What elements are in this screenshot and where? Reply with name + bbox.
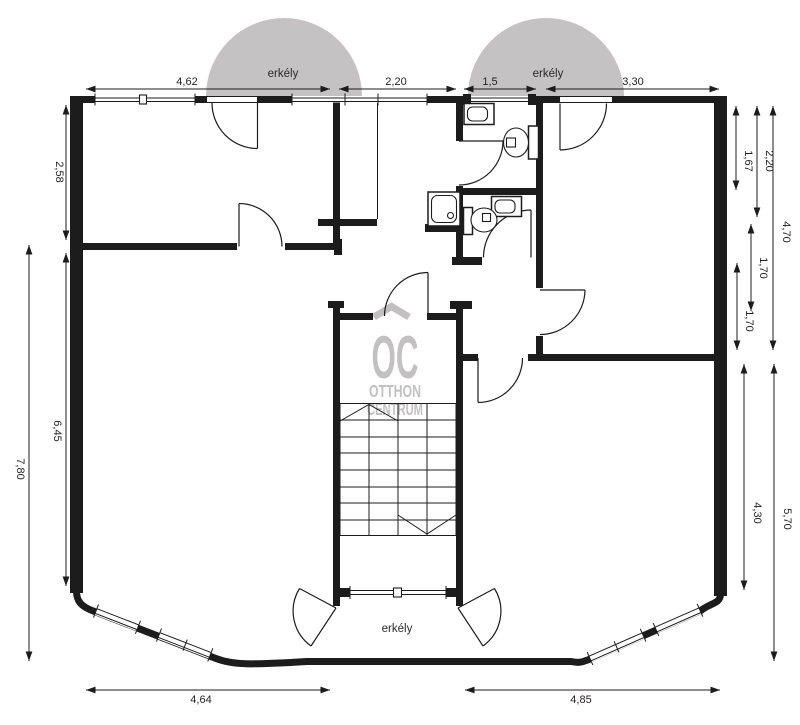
dim-right-4: 1,70: [757, 257, 769, 278]
dim-top-4: 3,30: [622, 76, 643, 88]
balcony-top-left-shape: [206, 18, 362, 96]
floor-plan-page: OC OTTHON CENTRUM: [0, 0, 800, 725]
angled-window-right-2: [653, 604, 703, 636]
door-hall-to-right-room: [540, 290, 585, 335]
dim-right-2: 2,20: [763, 150, 775, 171]
shower-tray: [428, 192, 460, 226]
dim-bottom-2: 4,85: [570, 694, 591, 706]
fixtures: [428, 104, 539, 235]
dim-right-5: 1,70: [743, 310, 755, 331]
sink-wc-top: [464, 104, 494, 125]
dim-left-1: 2,58: [53, 161, 65, 182]
floor-plan-canvas: OC OTTHON CENTRUM: [0, 0, 800, 725]
door-top-right-balcony: [560, 104, 607, 151]
dim-top-1: 4,62: [176, 76, 197, 88]
angled-window-right-1: [587, 629, 646, 665]
door-bottom-balcony-right: [458, 589, 501, 647]
balcony-label-top-right: erkély: [533, 68, 564, 80]
door-wc-top: [459, 141, 503, 185]
balcony-label-bottom: erkély: [382, 623, 413, 635]
door-top-left-balcony: [212, 103, 258, 149]
dim-top-3: 1,5: [482, 76, 497, 88]
angled-window-left-2: [156, 628, 212, 661]
dim-right-1: 1,67: [742, 150, 754, 171]
dim-left-3: 7,80: [14, 458, 26, 479]
otthon-centrum-logo: OC OTTHON CENTRUM: [367, 307, 423, 420]
dim-right-7: 5,70: [781, 508, 793, 529]
logo-word-otthon: OTTHON: [369, 381, 421, 401]
logo-roof-icon: [374, 307, 409, 318]
staircase: [340, 404, 456, 536]
dim-bottom-1: 4,64: [190, 694, 211, 706]
logo-word-centrum: CENTRUM: [367, 399, 423, 419]
door-living-room: [239, 204, 282, 247]
toilet-wc-top: [504, 126, 539, 159]
door-bottom-balcony-left: [293, 589, 336, 647]
dim-left-2: 6,45: [51, 420, 63, 441]
dim-right-3: 4,70: [780, 221, 792, 242]
sink-wc-bottom: [492, 197, 522, 217]
balcony-label-top-left: erkély: [268, 68, 299, 80]
dim-right-6: 4,30: [751, 502, 763, 523]
dim-top-2: 2,20: [385, 76, 406, 88]
balcony-top-left: [206, 18, 362, 96]
angled-window-left-1: [93, 604, 140, 633]
door-bottom-right-room: [478, 358, 523, 403]
